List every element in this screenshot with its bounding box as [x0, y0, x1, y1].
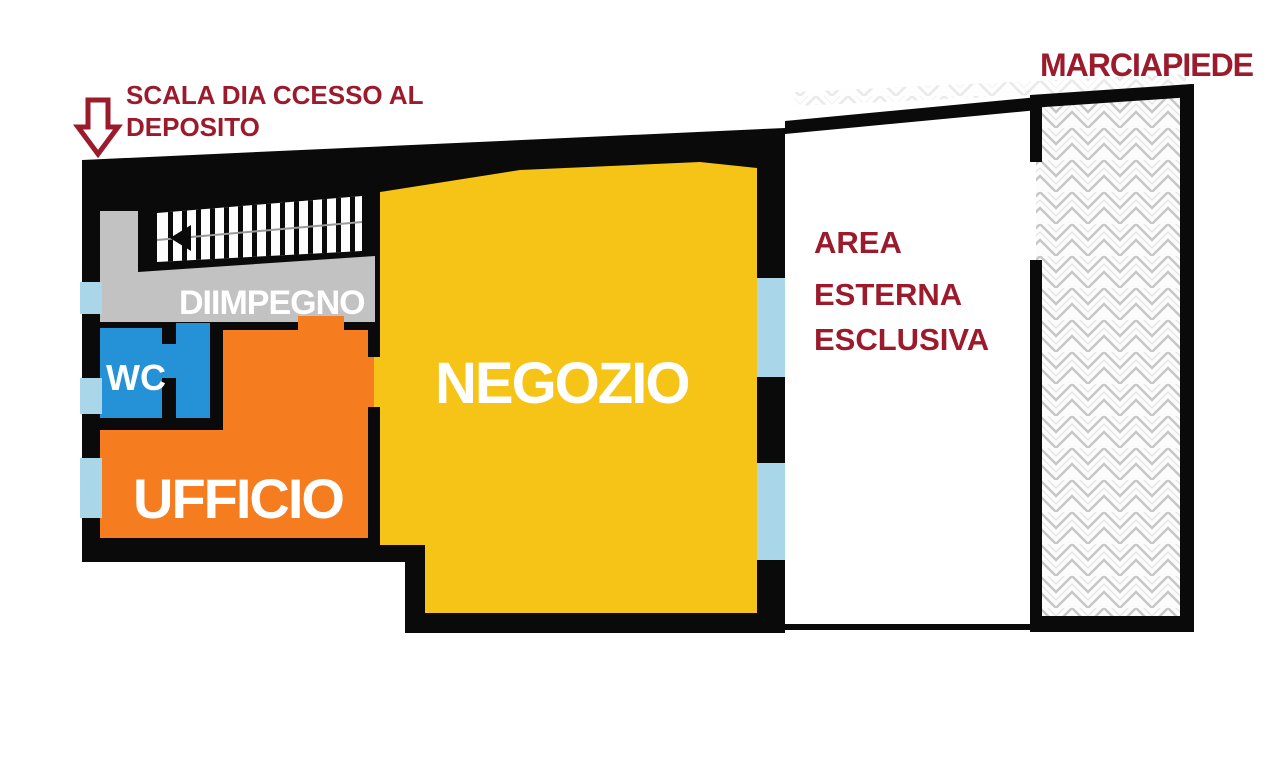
area-esterna-label-line2: ESTERNA: [814, 277, 962, 312]
marciapiede-region: [1036, 86, 1192, 630]
area-esterna-label-line3: ESCLUSIVA: [814, 322, 989, 357]
scala-label-line1: SCALA DIA CCESSO AL: [126, 80, 424, 110]
ufficio-negozio-door-gap-left: [364, 357, 374, 407]
area-esterna-bottom-line: [785, 624, 1038, 630]
marciapiede-right-border: [1180, 84, 1194, 632]
window-left-wc: [80, 378, 102, 414]
diimpegno-label: DIIMPEGNO: [179, 284, 365, 322]
window-right-negozio-lower: [757, 463, 785, 560]
wc-vestibule-room: [176, 323, 210, 418]
wc-label: WC: [106, 357, 166, 398]
window-left-corridor: [80, 282, 102, 314]
area-esterna-region: [785, 110, 1035, 624]
marciapiede-bottom-border: [1030, 616, 1194, 632]
marciapiede-label: MARCIAPIEDE: [1040, 47, 1254, 83]
window-right-negozio-upper: [757, 278, 785, 377]
marciapiede-left-border-lower: [1030, 260, 1042, 628]
scala-label-line2: DEPOSITO: [126, 112, 260, 142]
window-left-ufficio: [80, 458, 102, 518]
area-esterna-label-line1: AREA: [814, 225, 902, 260]
ufficio-label: UFFICIO: [133, 467, 343, 530]
floor-plan-canvas: SCALA DIA CCESSO AL DEPOSITO MARCIAPIEDE…: [0, 0, 1280, 774]
marciapiede-left-border-upper: [1030, 100, 1042, 162]
negozio-label: NEGOZIO: [435, 351, 688, 416]
floor-plan-drawing: SCALA DIA CCESSO AL DEPOSITO MARCIAPIEDE…: [0, 0, 1280, 774]
